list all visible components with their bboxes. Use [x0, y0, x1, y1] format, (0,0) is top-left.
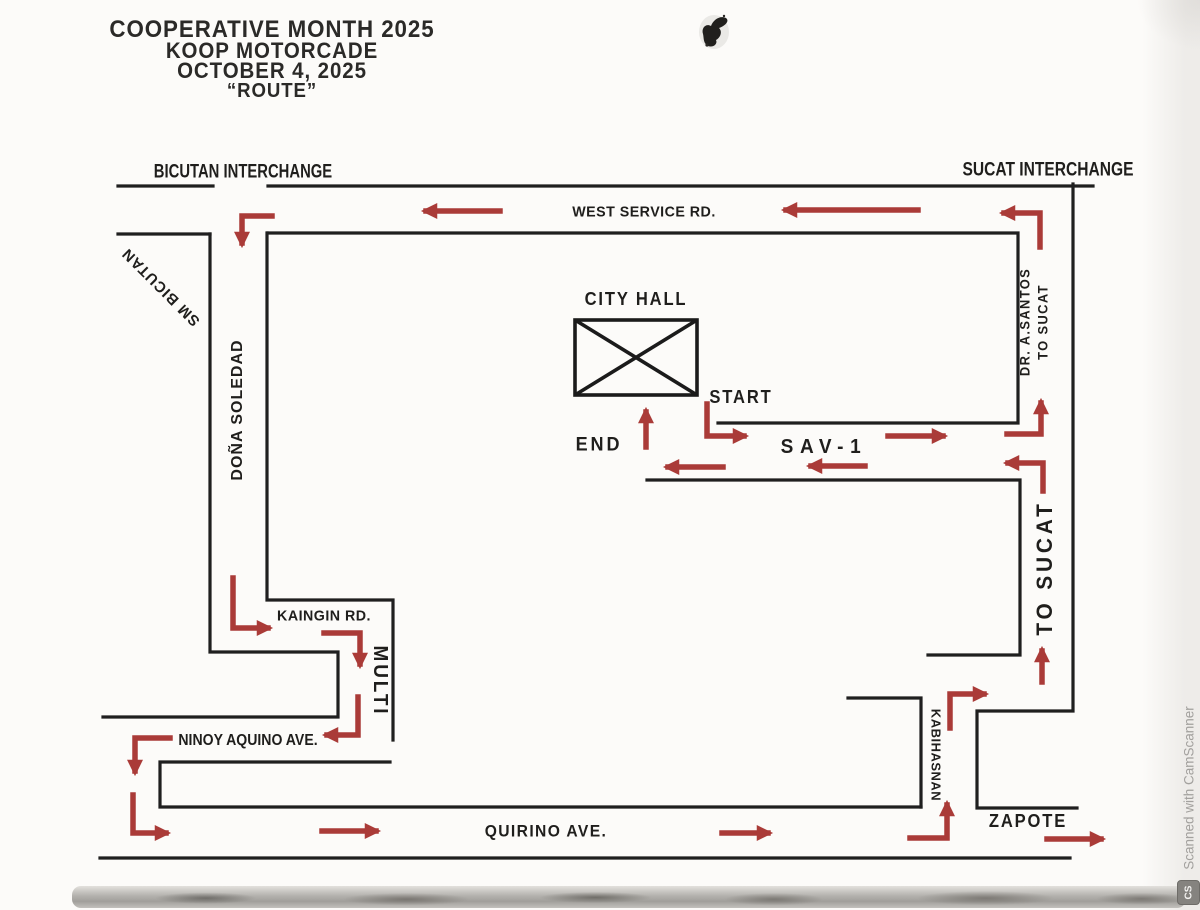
road-ninoy-block: [160, 762, 921, 807]
arrow-ninoy-south: [135, 738, 170, 771]
camscanner-watermark-text: Scanned with CamScanner: [1182, 706, 1196, 870]
label-to-sucat: TO SUCAT: [1034, 500, 1056, 635]
label-end: END: [576, 436, 623, 455]
title-line-3: OCTOBER 4, 2025: [177, 60, 367, 82]
road-dona-left: [103, 234, 338, 717]
route-map-scan: COOPERATIVE MONTH 2025 KOOP MOTORCADE OC…: [0, 0, 1200, 910]
arrow-dona-to-kaingin: [233, 578, 268, 628]
label-dona-soledad: DOÑA SOLEDAD: [230, 339, 246, 480]
city-hall-box: [575, 320, 697, 395]
label-bicutan-interchange: BICUTAN INTERCHANGE: [154, 163, 332, 182]
label-dr-a-santos-line1: DR. A.SANTOS: [1017, 268, 1035, 376]
arrow-tosucat-to-westbound: [1008, 463, 1043, 491]
arrow-sav1-to-drasantos: [1007, 403, 1041, 434]
arrow-drasantos-to-wsr: [1004, 213, 1040, 247]
label-dr-a-santos: DR. A.SANTOS TO SUCAT: [1017, 268, 1052, 376]
label-sav1: SAV-1: [781, 437, 868, 457]
label-start: START: [709, 388, 772, 406]
road-tosucat-inner: [647, 480, 1020, 655]
road-kabihasnan-left: [848, 698, 921, 807]
label-multi: MULTI: [370, 646, 390, 717]
label-kabihasnan: KABIHASNAN: [930, 709, 943, 801]
label-west-service-rd: WEST SERVICE RD.: [572, 205, 716, 220]
arrow-quirino-to-kabihasnan: [910, 805, 947, 838]
scan-artifact-band: [72, 886, 1186, 908]
camscanner-logo: CS: [1177, 880, 1200, 905]
label-city-hall: CITY HALL: [585, 290, 688, 308]
label-kaingin-rd: KAINGIN RD.: [277, 609, 371, 624]
road-lines: [100, 184, 1093, 858]
title-line-4: “ROUTE”: [227, 81, 317, 101]
label-quirino-ave: QUIRINO AVE.: [485, 823, 608, 840]
label-zapote: ZAPOTE: [989, 812, 1067, 830]
city-hall-cross: [575, 320, 697, 395]
label-sucat-interchange: SUCAT INTERCHANGE: [962, 161, 1133, 180]
camscanner-logo-text: CS: [1183, 886, 1194, 900]
arrow-kaingin-to-multi: [324, 633, 360, 664]
ink-blot: [699, 15, 729, 49]
arrow-start-to-sav1: [707, 404, 744, 436]
label-ninoy-aquino-ave: NINOY AQUINO AVE.: [178, 733, 317, 749]
label-dr-a-santos-line2: TO SUCAT: [1034, 268, 1052, 376]
